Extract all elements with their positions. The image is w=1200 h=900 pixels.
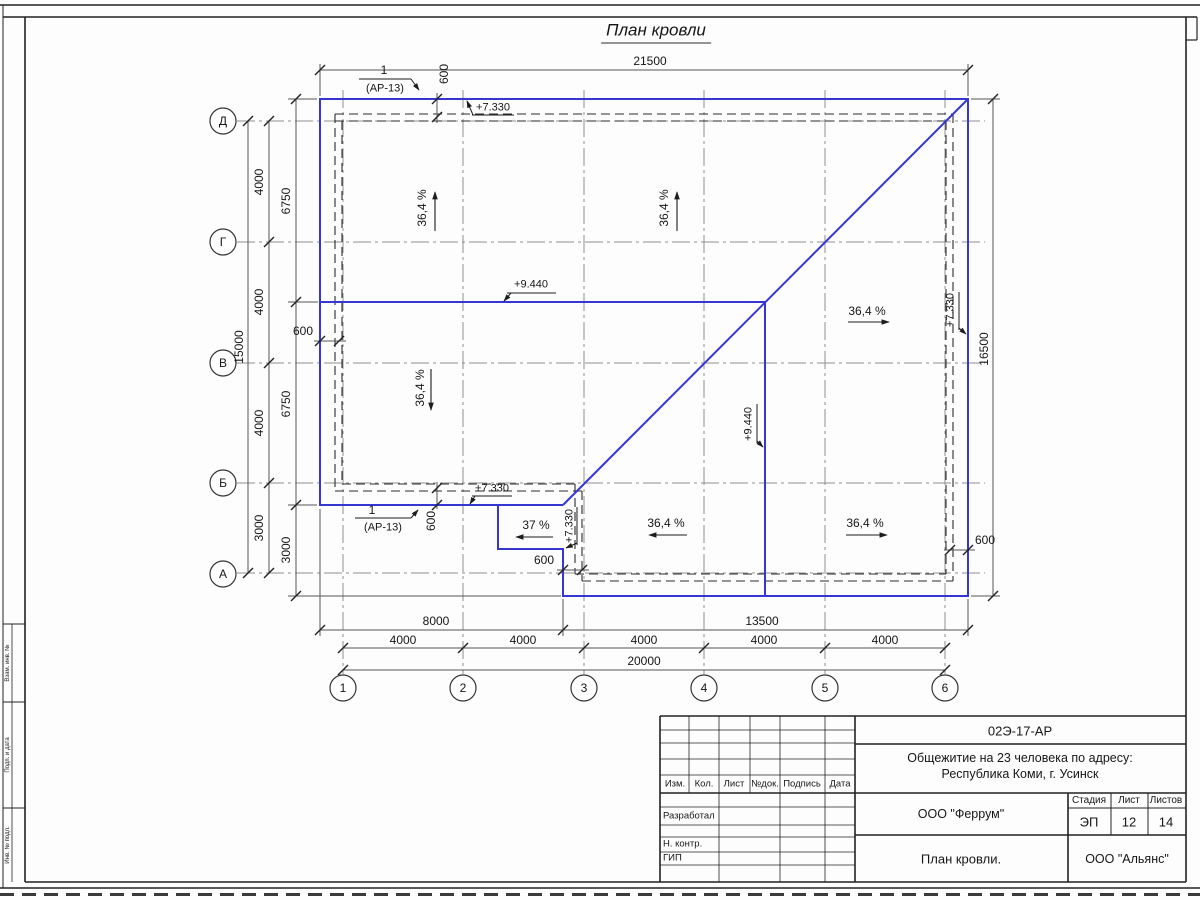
dim-right-total: 16500 xyxy=(978,332,990,365)
dim-bottom-chain-2: 4000 xyxy=(510,634,537,646)
elevation-eave-right: +7.330 xyxy=(946,293,957,327)
dim-offset-mid: 600 xyxy=(534,554,554,566)
dim-bottom-chain-1: 4000 xyxy=(390,634,417,646)
dim-bottom-13500: 13500 xyxy=(745,615,778,627)
dim-bottom-chain-4: 4000 xyxy=(751,634,778,646)
axis-row-a: А xyxy=(219,568,227,580)
dim-left-total: 15000 xyxy=(233,330,245,363)
elevation-eave-porch: +7.330 xyxy=(565,509,576,543)
stamp-doc-number: 02Э-17-АР xyxy=(988,725,1052,738)
stamp-sheets-value: 14 xyxy=(1159,816,1173,829)
callout-leaders xyxy=(355,79,419,518)
callout-top-number: 1 xyxy=(381,64,388,76)
stamp-col-kol: Кол. xyxy=(695,779,714,789)
slope-label-6: 36,4 % xyxy=(846,517,883,529)
stamp-col-ndok: №док. xyxy=(751,779,779,789)
dim-bottom-chain-5: 4000 xyxy=(872,634,899,646)
drawing-sheet: План кровли 21500 16500 15000 4000 4000 … xyxy=(0,0,1200,900)
side-label-inv: Инв. № подл. xyxy=(5,826,11,863)
grid-axes xyxy=(237,90,985,674)
stamp-col-izm: Изм. xyxy=(665,779,685,789)
stamp-sheet-value: 12 xyxy=(1122,816,1136,829)
axis-row-b: Б xyxy=(219,477,227,489)
slope-label-3: 36,4 % xyxy=(848,305,885,317)
axis-col-5: 5 xyxy=(822,682,829,694)
roof-plan-canvas xyxy=(0,0,1200,900)
stamp-col-list: Лист xyxy=(724,779,745,789)
dim-left-inner-1: 6750 xyxy=(280,188,292,215)
dim-left-chain-1: 4000 xyxy=(253,169,265,196)
stamp-stage-value: ЭП xyxy=(1080,816,1099,829)
dim-offset-top: 600 xyxy=(438,64,450,84)
dimension-ticks xyxy=(243,65,998,675)
dim-left-chain-2: 4000 xyxy=(253,289,265,316)
elevation-eave-top: +7.330 xyxy=(476,103,510,114)
stamp-col-podpis: Подпись xyxy=(783,779,821,789)
stamp-project-line1: Общежитие на 23 человека по адресу: xyxy=(907,752,1132,765)
stamp-row-developed: Разработал xyxy=(663,811,715,821)
axis-col-3: 3 xyxy=(581,682,588,694)
axis-col-4: 4 xyxy=(701,682,708,694)
dim-offset-right: 600 xyxy=(975,534,995,546)
elevation-ridge-top: +9.440 xyxy=(514,280,548,291)
callout-bottom-ref: (АР-13) xyxy=(364,523,402,534)
dim-offset-bottom-left: 600 xyxy=(425,511,437,531)
dimension-lines xyxy=(248,64,1000,670)
callout-top-ref: (АР-13) xyxy=(366,84,404,95)
stamp-drawing-name: План кровли. xyxy=(921,853,1001,866)
elevation-leaders xyxy=(467,101,966,548)
stamp-col-data: Дата xyxy=(829,779,850,789)
axis-col-1: 1 xyxy=(340,682,347,694)
dim-left-chain-3: 4000 xyxy=(253,410,265,437)
stamp-row-ncontrol: Н. контр. xyxy=(663,839,702,849)
side-label-podp: Подп. и дата xyxy=(5,737,11,772)
dim-left-chain-4: 3000 xyxy=(253,515,265,542)
axis-col-2: 2 xyxy=(460,682,467,694)
stamp-designer: ООО "Феррум" xyxy=(918,808,1004,821)
stamp-row-gip: ГИП xyxy=(663,853,682,863)
scan-artifact xyxy=(0,893,1200,896)
stamp-stage-label: Стадия xyxy=(1072,796,1106,806)
side-label-vzam: Взам. инв. № xyxy=(5,644,11,681)
slope-label-5: 36,4 % xyxy=(647,517,684,529)
elevation-eave-bottom: +7.330 xyxy=(475,484,509,495)
callout-bottom-number: 1 xyxy=(369,504,376,516)
slope-label-2: 36,4 % xyxy=(658,189,670,226)
dim-bottom-total: 20000 xyxy=(627,655,660,667)
dim-left-inner-2: 6750 xyxy=(280,391,292,418)
dim-left-inner-3: 3000 xyxy=(280,537,292,564)
page-title: План кровли xyxy=(601,21,711,44)
dim-top-total: 21500 xyxy=(633,55,666,67)
stamp-contractor: ООО "Альянс" xyxy=(1085,853,1169,866)
axis-row-v: В xyxy=(219,357,227,369)
stamp-sheet-label: Лист xyxy=(1118,796,1140,806)
slope-label-porch: 37 % xyxy=(522,519,549,531)
elevation-ridge-right: +9.440 xyxy=(744,407,755,441)
slope-label-4: 36,4 % xyxy=(414,369,426,406)
axis-col-6: 6 xyxy=(942,682,949,694)
dim-bottom-8000: 8000 xyxy=(423,615,450,627)
dim-offset-left: 600 xyxy=(293,325,313,337)
axis-row-g: Г xyxy=(220,236,227,248)
dim-bottom-chain-3: 4000 xyxy=(631,634,658,646)
stamp-sheets-label: Листов xyxy=(1150,796,1183,806)
slope-label-1: 36,4 % xyxy=(416,189,428,226)
axis-row-d: Д xyxy=(219,115,227,127)
stamp-project-line2: Республика Коми, г. Усинск xyxy=(942,768,1099,781)
